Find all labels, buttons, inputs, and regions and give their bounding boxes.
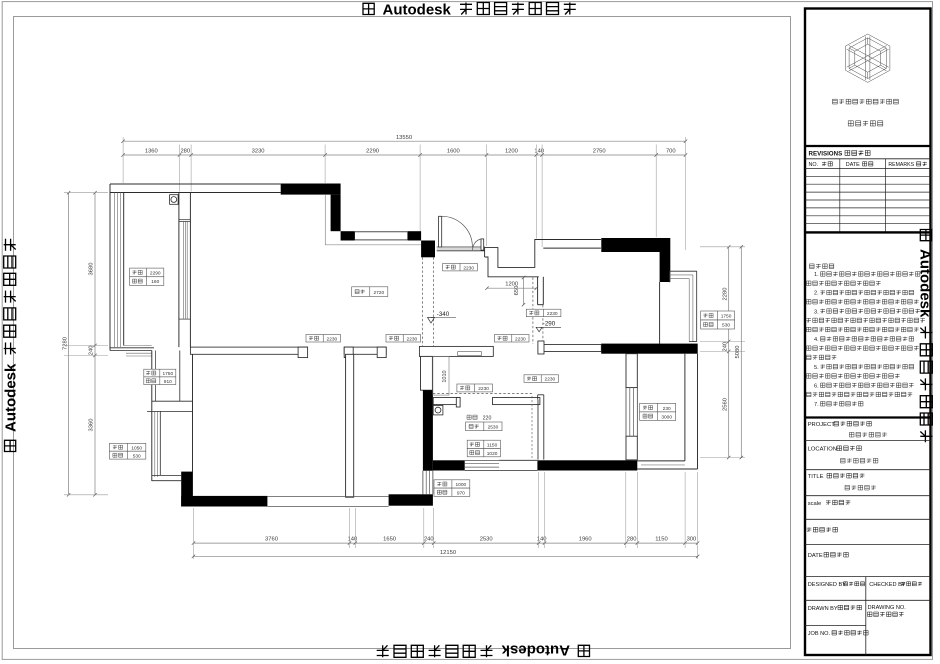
svg-text:2290: 2290	[150, 271, 161, 277]
svg-text:2230: 2230	[478, 386, 489, 392]
svg-text:DATE: DATE	[808, 553, 823, 559]
svg-text:3360: 3360	[89, 419, 95, 432]
svg-text:PROJECT: PROJECT	[808, 422, 836, 428]
svg-text:240: 240	[89, 346, 95, 356]
svg-text:280: 280	[180, 149, 190, 155]
svg-text:DRAWING NO.: DRAWING NO.	[868, 605, 907, 611]
svg-text:1360: 1360	[145, 149, 158, 155]
svg-text:1150: 1150	[487, 442, 498, 448]
svg-text:2530: 2530	[488, 424, 499, 430]
svg-text:7280: 7280	[62, 337, 68, 350]
svg-text:1.: 1.	[814, 272, 819, 278]
svg-text:-290: -290	[543, 320, 556, 327]
svg-text:2230: 2230	[515, 336, 526, 342]
svg-text:REVISIONS: REVISIONS	[809, 150, 843, 157]
svg-text:Autodesk: Autodesk	[383, 1, 452, 18]
svg-text:CHECKED BY: CHECKED BY	[869, 582, 906, 588]
svg-text:4.: 4.	[814, 337, 819, 343]
svg-text:530: 530	[722, 323, 730, 329]
svg-text:1750: 1750	[162, 371, 173, 377]
svg-text:3000: 3000	[661, 414, 672, 420]
svg-text:DESIGNED BY: DESIGNED BY	[808, 582, 847, 588]
svg-text:DRAWN BY: DRAWN BY	[808, 606, 838, 612]
svg-text:2720: 2720	[373, 290, 384, 296]
svg-text:240: 240	[424, 537, 434, 543]
svg-text:3760: 3760	[265, 537, 278, 543]
svg-text:1600: 1600	[447, 149, 460, 155]
svg-text:530: 530	[133, 453, 141, 459]
svg-text:1750: 1750	[721, 314, 732, 320]
svg-text:240: 240	[722, 342, 728, 352]
svg-text:scale: scale	[808, 501, 822, 507]
svg-text:2230: 2230	[327, 336, 338, 342]
svg-text:300: 300	[687, 537, 697, 543]
svg-text:1150: 1150	[655, 537, 667, 543]
svg-text:280: 280	[627, 537, 637, 543]
svg-text:910: 910	[164, 379, 172, 385]
svg-text:Autodesk: Autodesk	[501, 642, 570, 659]
svg-text:1960: 1960	[579, 537, 592, 543]
svg-text:970: 970	[457, 490, 465, 496]
svg-text:1000: 1000	[456, 482, 467, 488]
svg-text:13550: 13550	[396, 135, 412, 141]
svg-text:NO.: NO.	[809, 162, 819, 168]
svg-text:2290: 2290	[366, 149, 379, 155]
svg-text:JOB NO.: JOB NO.	[808, 631, 831, 637]
svg-text:2230: 2230	[547, 311, 558, 317]
svg-text:Autodesk: Autodesk	[3, 363, 20, 432]
svg-text:-340: -340	[437, 311, 450, 318]
svg-text:2230: 2230	[545, 377, 556, 383]
svg-text:140: 140	[534, 149, 544, 155]
svg-text:5.: 5.	[814, 365, 819, 371]
svg-text:1050: 1050	[131, 445, 142, 451]
svg-text:3680: 3680	[89, 263, 95, 276]
svg-text:2530: 2530	[480, 537, 493, 543]
svg-text:2230: 2230	[407, 336, 418, 342]
svg-text:1020: 1020	[487, 451, 498, 457]
svg-text:650: 650	[514, 286, 520, 296]
svg-text:REMARKS: REMARKS	[888, 162, 914, 168]
svg-text:230: 230	[663, 406, 671, 412]
svg-text:160: 160	[151, 279, 159, 285]
svg-text:140: 140	[348, 537, 358, 543]
svg-text:5080: 5080	[735, 346, 741, 359]
svg-text:220: 220	[483, 415, 492, 421]
svg-text:LOCATION: LOCATION	[808, 447, 837, 453]
svg-text:2.: 2.	[814, 291, 819, 297]
svg-text:1650: 1650	[383, 537, 396, 543]
svg-text:1200: 1200	[505, 149, 518, 155]
svg-text:6.: 6.	[814, 383, 819, 389]
svg-text:2230: 2230	[463, 265, 474, 271]
svg-text:7.: 7.	[814, 402, 819, 408]
svg-text:TITLE: TITLE	[808, 474, 824, 480]
svg-text:2280: 2280	[722, 288, 728, 301]
svg-text:2750: 2750	[593, 149, 606, 155]
svg-text:2560: 2560	[722, 398, 728, 411]
svg-text:DATE: DATE	[846, 162, 860, 168]
svg-text:700: 700	[666, 149, 676, 155]
svg-text:140: 140	[537, 537, 547, 543]
svg-text:1010: 1010	[442, 370, 448, 382]
svg-text:3230: 3230	[252, 149, 265, 155]
svg-text:3.: 3.	[814, 309, 819, 315]
svg-text:12150: 12150	[440, 550, 456, 556]
